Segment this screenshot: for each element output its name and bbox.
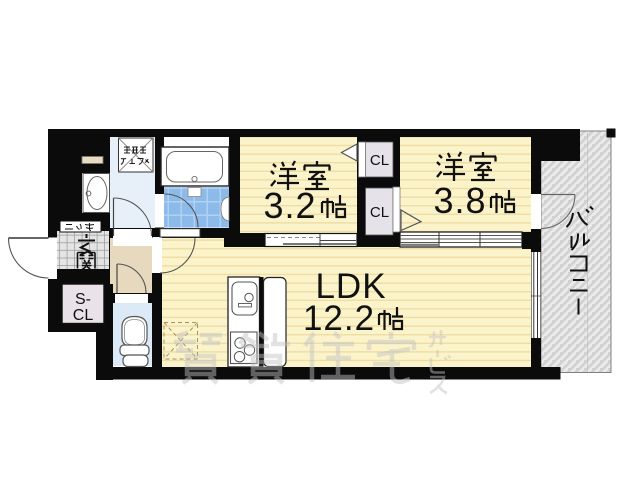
svg-text:CL: CL bbox=[370, 152, 389, 169]
svg-text:CL: CL bbox=[370, 204, 389, 221]
svg-text:3.8: 3.8 bbox=[433, 180, 486, 221]
svg-text:S-: S- bbox=[75, 291, 91, 308]
svg-text:CL: CL bbox=[73, 307, 94, 324]
svg-text:3.2: 3.2 bbox=[263, 185, 316, 226]
svg-text:12.2: 12.2 bbox=[303, 299, 375, 338]
